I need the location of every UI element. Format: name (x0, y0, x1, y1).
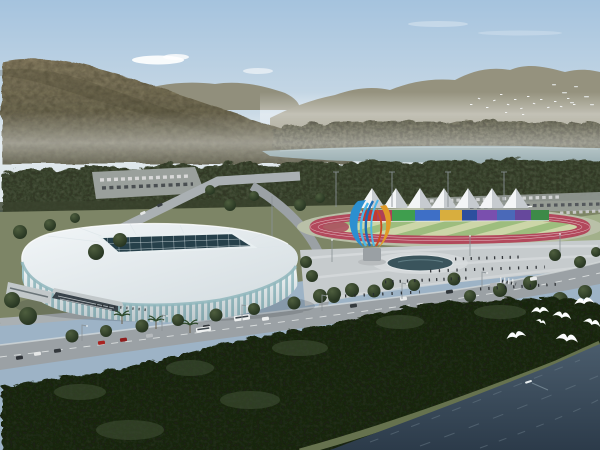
wall-segment (497, 210, 515, 221)
wall-segment (415, 210, 440, 221)
sculpture-pedestal (363, 248, 381, 261)
wall-segment (440, 210, 462, 221)
wall-segment (531, 210, 549, 221)
rendering-image (0, 0, 600, 450)
wall-segment (392, 210, 415, 221)
wall-segment (477, 210, 497, 221)
wall-segment (462, 210, 477, 221)
wall-segment (515, 210, 531, 221)
